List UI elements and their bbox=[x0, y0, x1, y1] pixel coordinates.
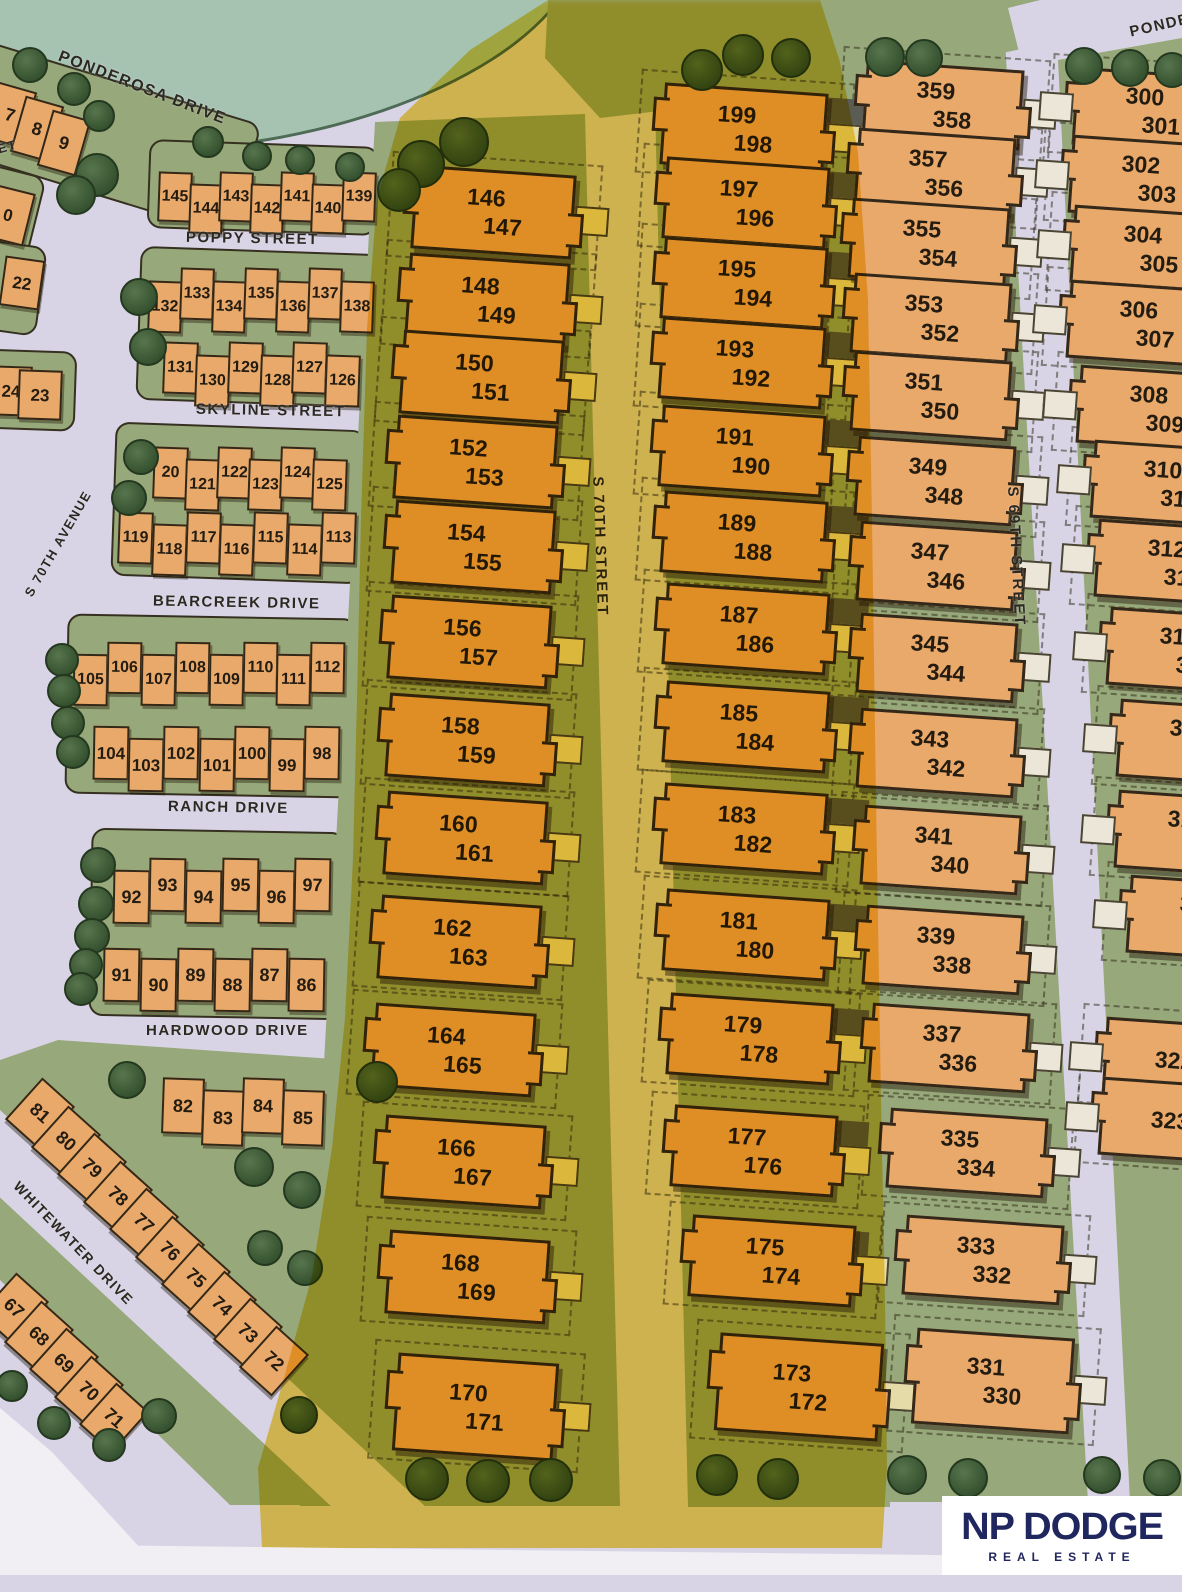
lot-344: 344 bbox=[926, 659, 966, 686]
street-label-ranch: RANCH DRIVE bbox=[168, 798, 289, 817]
building-335-334: 335334 bbox=[885, 1108, 1048, 1199]
lot-126: 126 bbox=[324, 354, 361, 407]
tree-icon bbox=[242, 141, 272, 171]
lot-346: 346 bbox=[926, 567, 966, 594]
driveway-pad bbox=[534, 1044, 570, 1075]
lot-101: 101 bbox=[198, 738, 235, 793]
tree-icon bbox=[192, 126, 224, 158]
lot-350: 350 bbox=[920, 397, 960, 424]
lot-100: 100 bbox=[233, 726, 270, 781]
np-dodge-logo-tagline: REAL ESTATE bbox=[988, 1550, 1135, 1564]
lot-334: 334 bbox=[956, 1154, 996, 1181]
lot-357: 357 bbox=[908, 145, 948, 172]
lot-84: 84 bbox=[241, 1077, 285, 1134]
lot-323: 323 bbox=[1150, 1107, 1182, 1134]
lot-94: 94 bbox=[185, 870, 223, 925]
building-318-319: 318319 bbox=[1113, 790, 1182, 879]
lot-85: 85 bbox=[281, 1089, 325, 1146]
lot-169: 169 bbox=[457, 1278, 497, 1305]
tree-icon bbox=[529, 1458, 573, 1502]
lot-111: 111 bbox=[276, 654, 312, 707]
lot-161: 161 bbox=[455, 839, 495, 866]
building-308-309: 308309 bbox=[1075, 365, 1182, 454]
lot-115: 115 bbox=[252, 511, 289, 564]
lot-304: 304 bbox=[1123, 221, 1163, 248]
lot-305: 305 bbox=[1139, 250, 1179, 277]
lot-107: 107 bbox=[140, 654, 176, 707]
lot-336: 336 bbox=[938, 1049, 978, 1076]
lot-331: 331 bbox=[966, 1353, 1006, 1380]
driveway-pad bbox=[550, 636, 586, 667]
tree-icon bbox=[905, 39, 943, 77]
driveway-pad bbox=[1020, 844, 1056, 875]
lot-162: 162 bbox=[433, 914, 473, 941]
tree-icon bbox=[285, 145, 315, 175]
lot-175: 175 bbox=[745, 1233, 785, 1260]
lot-353: 353 bbox=[904, 290, 944, 317]
tree-icon bbox=[722, 34, 764, 76]
lot-341: 341 bbox=[914, 822, 954, 849]
building-345-344: 345344 bbox=[855, 613, 1018, 704]
street-label-s70th-street: S 70TH STREET bbox=[589, 476, 611, 617]
building-193-192: 193192 bbox=[657, 316, 826, 409]
tree-icon bbox=[356, 1061, 398, 1103]
tree-icon bbox=[123, 439, 159, 475]
lot-110: 110 bbox=[242, 642, 278, 695]
lot-83: 83 bbox=[201, 1089, 245, 1146]
building-306-307: 306307 bbox=[1065, 280, 1182, 369]
building-312-313: 312313 bbox=[1093, 519, 1182, 608]
building-310-311: 310311 bbox=[1089, 440, 1182, 529]
tree-icon bbox=[108, 1061, 146, 1099]
driveway-pad bbox=[1080, 814, 1116, 845]
tree-icon bbox=[283, 1171, 321, 1209]
tree-icon bbox=[865, 37, 905, 77]
lot-186: 186 bbox=[735, 630, 775, 657]
tree-icon bbox=[757, 1458, 799, 1500]
building-337-336: 337336 bbox=[867, 1003, 1030, 1094]
lot-173: 173 bbox=[772, 1359, 812, 1386]
lot-314: 314 bbox=[1159, 623, 1182, 650]
driveway-pad bbox=[1016, 652, 1052, 683]
lot-184: 184 bbox=[735, 728, 775, 755]
lot-339: 339 bbox=[916, 922, 956, 949]
lot-192: 192 bbox=[731, 364, 771, 391]
building-353-352: 353352 bbox=[849, 273, 1012, 364]
building-154-155: 154155 bbox=[390, 499, 556, 594]
lot-166: 166 bbox=[437, 1134, 477, 1161]
np-dodge-logo-name: NP DODGE bbox=[961, 1508, 1163, 1546]
driveway-pad bbox=[1036, 229, 1072, 260]
lot-91: 91 bbox=[103, 948, 141, 1003]
lot-163: 163 bbox=[449, 943, 489, 970]
driveway-pad bbox=[574, 206, 610, 237]
tree-icon bbox=[37, 1406, 71, 1440]
lot-356: 356 bbox=[924, 174, 964, 201]
lot-155: 155 bbox=[463, 548, 503, 575]
building-314-315: 314315 bbox=[1105, 607, 1182, 696]
lot-154: 154 bbox=[447, 519, 487, 546]
lot-354: 354 bbox=[918, 244, 958, 271]
building-195-194: 195194 bbox=[659, 236, 828, 329]
building-170-171: 170171 bbox=[392, 1353, 559, 1462]
lot-119: 119 bbox=[117, 511, 154, 564]
building-152-153: 152153 bbox=[392, 414, 558, 509]
lot-342: 342 bbox=[926, 754, 966, 781]
lot-96: 96 bbox=[257, 870, 295, 925]
driveway-pad bbox=[1060, 543, 1096, 574]
tree-icon bbox=[83, 100, 115, 132]
lot-315: 315 bbox=[1175, 652, 1182, 679]
tree-icon bbox=[92, 1428, 126, 1462]
lot-180: 180 bbox=[735, 936, 775, 963]
lot-352: 352 bbox=[920, 319, 960, 346]
plat-map: PONDEROSA DRIVE PONDE ET POPPY STREET SK… bbox=[0, 0, 1182, 1575]
tree-icon bbox=[287, 1250, 323, 1286]
lot-93: 93 bbox=[149, 858, 187, 913]
driveway-pad bbox=[548, 1271, 584, 1302]
tree-icon bbox=[1154, 52, 1182, 88]
lot-179: 179 bbox=[723, 1011, 763, 1038]
street-label-hardwood: HARDWOOD DRIVE bbox=[146, 1022, 309, 1039]
driveway-pad bbox=[1042, 389, 1078, 420]
lot-185: 185 bbox=[719, 699, 759, 726]
street-label-poppy: POPPY STREET bbox=[186, 229, 319, 248]
lot-128: 128 bbox=[259, 354, 296, 407]
lot-318: 318 bbox=[1167, 806, 1182, 833]
lot-127: 127 bbox=[291, 341, 328, 394]
tree-icon bbox=[247, 1230, 283, 1266]
driveway-pad bbox=[1038, 91, 1074, 122]
tree-icon bbox=[696, 1454, 738, 1496]
lot-301: 301 bbox=[1141, 112, 1181, 139]
building-320-321: 320321 bbox=[1125, 875, 1182, 964]
building-183-182: 183182 bbox=[659, 782, 828, 875]
lot-306: 306 bbox=[1119, 296, 1159, 323]
lot-300: 300 bbox=[1125, 83, 1165, 110]
lot-330: 330 bbox=[982, 1382, 1022, 1409]
lot-197: 197 bbox=[719, 175, 759, 202]
driveway-pad bbox=[1028, 1042, 1064, 1073]
building-197-196: 197196 bbox=[661, 156, 830, 249]
lot-312: 312 bbox=[1147, 535, 1182, 562]
lot-316: 316 bbox=[1169, 715, 1182, 742]
tree-icon bbox=[45, 643, 79, 677]
tree-icon bbox=[681, 49, 723, 91]
building-323: 323 bbox=[1097, 1077, 1182, 1166]
tree-icon bbox=[64, 972, 98, 1006]
lot-137: 137 bbox=[307, 267, 343, 320]
lot-88: 88 bbox=[214, 958, 252, 1013]
lot-95: 95 bbox=[221, 858, 259, 913]
lot-90: 90 bbox=[140, 958, 178, 1013]
lot-112: 112 bbox=[310, 642, 346, 695]
tree-icon bbox=[405, 1457, 449, 1501]
tree-icon bbox=[1143, 1459, 1181, 1497]
lot-183: 183 bbox=[717, 801, 757, 828]
lot-145: 145 bbox=[157, 171, 193, 222]
driveway-pad bbox=[836, 1145, 872, 1176]
lot-333: 333 bbox=[956, 1232, 996, 1259]
lot-108: 108 bbox=[174, 642, 210, 695]
lot-129: 129 bbox=[227, 341, 264, 394]
driveway-pad bbox=[1010, 390, 1046, 421]
lot-106: 106 bbox=[106, 642, 142, 695]
tree-icon bbox=[78, 886, 114, 922]
lot-189: 189 bbox=[717, 509, 757, 536]
building-339-338: 339338 bbox=[861, 905, 1024, 996]
lot-99: 99 bbox=[269, 738, 306, 793]
building-181-180: 181180 bbox=[661, 888, 830, 981]
lot-193: 193 bbox=[715, 335, 755, 362]
lot-134: 134 bbox=[211, 280, 247, 333]
lot-190: 190 bbox=[731, 452, 771, 479]
lot-114: 114 bbox=[286, 523, 323, 576]
tree-icon bbox=[234, 1147, 274, 1187]
driveway-pad bbox=[1062, 1254, 1098, 1285]
lot-337: 337 bbox=[922, 1020, 962, 1047]
tree-icon bbox=[47, 674, 81, 708]
tree-icon bbox=[120, 278, 158, 316]
lot-22: 22 bbox=[0, 255, 45, 310]
lot-345: 345 bbox=[910, 630, 950, 657]
tree-icon bbox=[377, 168, 421, 212]
lot-313: 313 bbox=[1163, 564, 1182, 591]
tree-icon bbox=[771, 38, 811, 78]
street-label-s70th-avenue: S 70TH AVENUE bbox=[22, 488, 95, 599]
building-191-190: 191190 bbox=[657, 404, 826, 497]
tree-icon bbox=[111, 480, 147, 516]
lot-347: 347 bbox=[910, 538, 950, 565]
lot-97: 97 bbox=[294, 858, 332, 913]
np-dodge-logo: NP DODGE REAL ESTATE bbox=[942, 1496, 1182, 1575]
tree-icon bbox=[1111, 49, 1149, 87]
tree-icon bbox=[56, 175, 96, 215]
lot-118: 118 bbox=[151, 523, 188, 576]
building-150-151: 150151 bbox=[398, 329, 564, 424]
lot-102: 102 bbox=[163, 726, 200, 781]
lot-98: 98 bbox=[304, 726, 341, 781]
driveway-pad bbox=[546, 832, 582, 863]
lot-182: 182 bbox=[733, 830, 773, 857]
lot-164: 164 bbox=[427, 1022, 467, 1049]
lot-308: 308 bbox=[1129, 381, 1169, 408]
driveway-pad bbox=[1072, 1375, 1108, 1406]
driveway-pad bbox=[1072, 631, 1108, 662]
tree-icon bbox=[280, 1396, 318, 1434]
lot-188: 188 bbox=[733, 538, 773, 565]
driveway-pad bbox=[1056, 464, 1092, 495]
tree-icon bbox=[56, 735, 90, 769]
lot-146: 146 bbox=[467, 184, 507, 211]
lot-176: 176 bbox=[743, 1152, 783, 1179]
driveway-pad bbox=[1082, 723, 1118, 754]
lot-149: 149 bbox=[477, 301, 517, 328]
lot-109: 109 bbox=[208, 654, 244, 707]
building-351-350: 351350 bbox=[849, 351, 1012, 442]
lot-158: 158 bbox=[441, 712, 481, 739]
lot-135: 135 bbox=[243, 267, 279, 320]
lot-335: 335 bbox=[940, 1125, 980, 1152]
lot-157: 157 bbox=[459, 643, 499, 670]
driveway-pad bbox=[1016, 747, 1052, 778]
building-162-163: 162163 bbox=[376, 894, 542, 989]
driveway-pad bbox=[1032, 304, 1068, 335]
tree-icon bbox=[948, 1458, 988, 1498]
lot-140: 140 bbox=[310, 183, 346, 234]
lot-310: 310 bbox=[1143, 456, 1182, 483]
lot-117: 117 bbox=[185, 511, 222, 564]
lot-136: 136 bbox=[275, 280, 311, 333]
building-331-330: 331330 bbox=[911, 1328, 1075, 1435]
lot-82: 82 bbox=[161, 1077, 205, 1134]
lot-170: 170 bbox=[449, 1379, 489, 1406]
tree-icon bbox=[439, 117, 489, 167]
lot-103: 103 bbox=[128, 738, 165, 793]
lot-311: 311 bbox=[1160, 485, 1182, 512]
lot-143: 143 bbox=[218, 171, 254, 222]
tree-icon bbox=[887, 1455, 927, 1495]
building-160-161: 160161 bbox=[382, 790, 548, 885]
lot-131: 131 bbox=[162, 341, 199, 394]
lot-174: 174 bbox=[761, 1262, 801, 1289]
building-189-188: 189188 bbox=[659, 490, 828, 583]
driveway-pad bbox=[1034, 159, 1070, 190]
building-175-174: 175174 bbox=[687, 1214, 856, 1307]
street-label-skyline: SKYLINE STREET bbox=[196, 401, 346, 421]
lot-116: 116 bbox=[218, 523, 255, 576]
building-187-186: 187186 bbox=[661, 582, 830, 675]
driveway-pad bbox=[540, 936, 576, 967]
tree-icon bbox=[129, 328, 167, 366]
lot-196: 196 bbox=[735, 204, 775, 231]
lot-181: 181 bbox=[719, 907, 759, 934]
building-156-157: 156157 bbox=[386, 594, 552, 689]
tree-icon bbox=[1083, 1456, 1121, 1494]
lot-160: 160 bbox=[439, 810, 479, 837]
lot-167: 167 bbox=[453, 1163, 493, 1190]
lot-86: 86 bbox=[288, 958, 326, 1013]
building-177-176: 177176 bbox=[669, 1104, 838, 1197]
lot-171: 171 bbox=[465, 1408, 505, 1435]
driveway-pad bbox=[854, 1255, 890, 1286]
tree-icon bbox=[466, 1459, 510, 1503]
driveway-pad bbox=[556, 1401, 592, 1432]
building-166-167: 166167 bbox=[380, 1114, 546, 1209]
lot-187: 187 bbox=[719, 601, 759, 628]
lot-92: 92 bbox=[113, 870, 151, 925]
lot-133: 133 bbox=[179, 267, 215, 320]
driveway-pad bbox=[562, 371, 598, 402]
tree-icon bbox=[80, 847, 116, 883]
lot-355: 355 bbox=[902, 215, 942, 242]
tree-icon bbox=[12, 47, 48, 83]
lot-172: 172 bbox=[788, 1388, 828, 1415]
lot-351: 351 bbox=[904, 368, 944, 395]
building-316-317: 316317 bbox=[1115, 699, 1182, 788]
lot-156: 156 bbox=[443, 614, 483, 641]
lot-349: 349 bbox=[908, 453, 948, 480]
lot-358: 358 bbox=[932, 106, 972, 133]
lot-124: 124 bbox=[279, 446, 316, 499]
tree-icon bbox=[1065, 47, 1103, 85]
lot-121: 121 bbox=[184, 458, 221, 511]
building-168-169: 168169 bbox=[384, 1229, 550, 1324]
driveway-pad bbox=[1046, 1147, 1082, 1178]
driveway-pad bbox=[548, 734, 584, 765]
driveway-pad bbox=[1022, 944, 1058, 975]
lot-151: 151 bbox=[471, 378, 511, 405]
street-label-bearcreek: BEARCREEK DRIVE bbox=[153, 593, 321, 613]
tree-icon bbox=[335, 152, 365, 182]
lot-195: 195 bbox=[717, 255, 757, 282]
lot-147: 147 bbox=[483, 213, 523, 240]
building-179-178: 179178 bbox=[665, 992, 834, 1085]
lot-177: 177 bbox=[727, 1123, 767, 1150]
building-343-342: 343342 bbox=[855, 708, 1018, 799]
driveway-pad bbox=[1064, 1101, 1100, 1132]
lot-153: 153 bbox=[465, 463, 505, 490]
building-349-348: 349348 bbox=[853, 436, 1016, 527]
lot-307: 307 bbox=[1135, 325, 1175, 352]
lot-138: 138 bbox=[339, 280, 375, 333]
driveway-pad bbox=[1092, 899, 1128, 930]
lot-159: 159 bbox=[457, 741, 497, 768]
tree-icon bbox=[0, 1370, 28, 1402]
tree-icon bbox=[141, 1398, 177, 1434]
lot-113: 113 bbox=[320, 511, 357, 564]
lot-194: 194 bbox=[733, 284, 773, 311]
lot-23: 23 bbox=[17, 369, 63, 421]
lot-191: 191 bbox=[715, 423, 755, 450]
driveway-pad bbox=[1068, 1041, 1104, 1072]
lot-178: 178 bbox=[739, 1040, 779, 1067]
lot-125: 125 bbox=[311, 458, 348, 511]
building-341-340: 341340 bbox=[859, 805, 1022, 896]
lot-348: 348 bbox=[924, 482, 964, 509]
tree-icon bbox=[57, 72, 91, 106]
lot-148: 148 bbox=[461, 272, 501, 299]
lot-343: 343 bbox=[910, 725, 950, 752]
lot-302: 302 bbox=[1121, 151, 1161, 178]
building-347-346: 347346 bbox=[855, 521, 1018, 612]
lot-87: 87 bbox=[251, 948, 289, 1003]
driveway-pad bbox=[568, 294, 604, 325]
lot-332: 332 bbox=[972, 1261, 1012, 1288]
lot-152: 152 bbox=[449, 434, 489, 461]
building-173-172: 173172 bbox=[714, 1332, 884, 1441]
lot-165: 165 bbox=[443, 1051, 483, 1078]
lot-104: 104 bbox=[93, 726, 130, 781]
lot-340: 340 bbox=[930, 851, 970, 878]
driveway-pad bbox=[554, 541, 590, 572]
lot-309: 309 bbox=[1145, 410, 1182, 437]
lot-89: 89 bbox=[177, 948, 215, 1003]
lot-303: 303 bbox=[1137, 180, 1177, 207]
building-333-332: 333332 bbox=[901, 1215, 1064, 1306]
lot-199: 199 bbox=[717, 101, 757, 128]
driveway-pad bbox=[556, 456, 592, 487]
lot-130: 130 bbox=[194, 354, 231, 407]
lot-150: 150 bbox=[455, 349, 495, 376]
driveway-pad bbox=[544, 1156, 580, 1187]
lot-338: 338 bbox=[932, 951, 972, 978]
lot-322: 322 bbox=[1154, 1047, 1182, 1074]
building-185-184: 185184 bbox=[661, 680, 830, 773]
lot-359: 359 bbox=[916, 77, 956, 104]
lot-168: 168 bbox=[441, 1249, 481, 1276]
building-158-159: 158159 bbox=[384, 692, 550, 787]
